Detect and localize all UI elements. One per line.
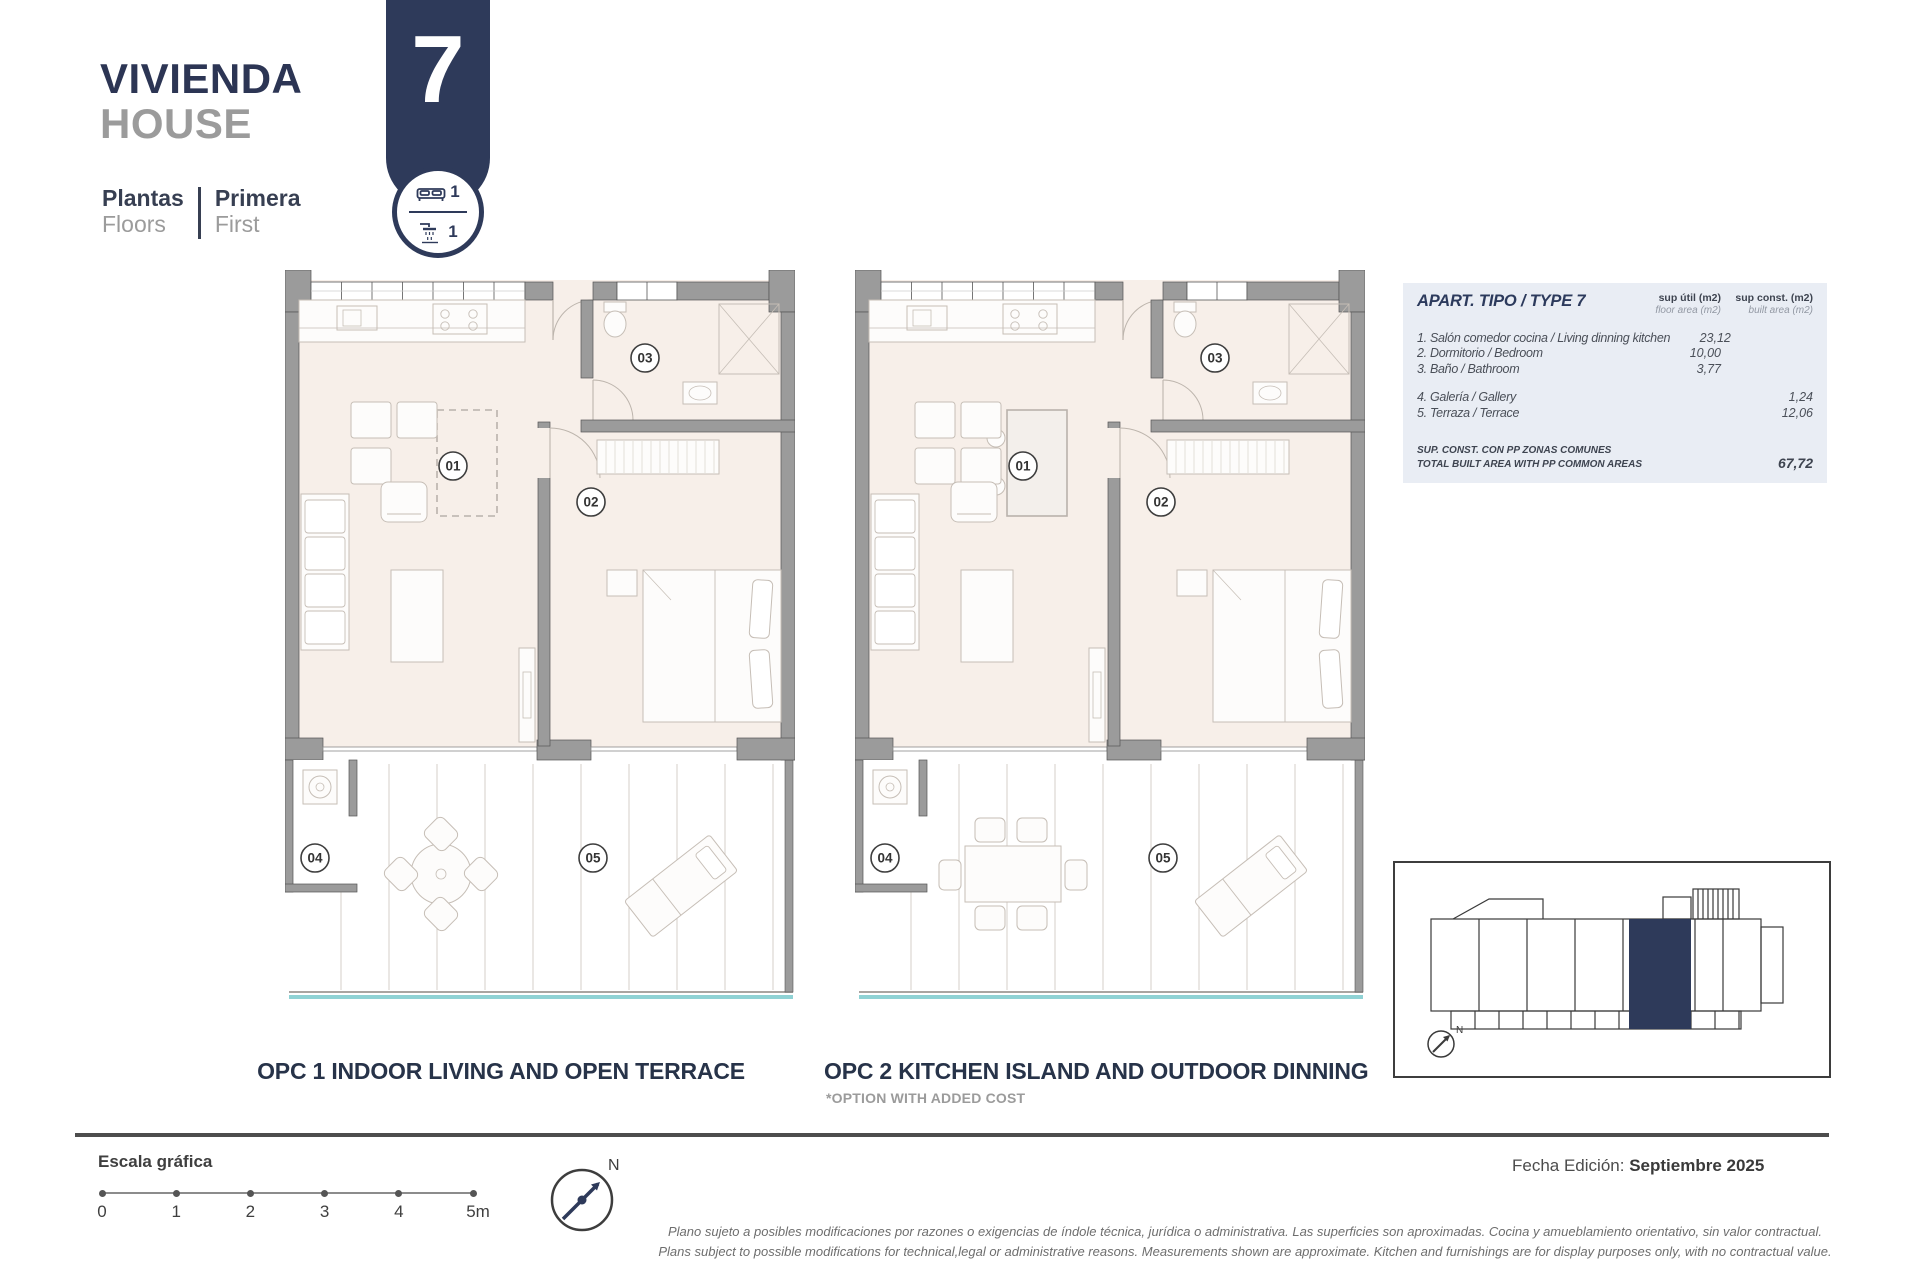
svg-text:04: 04: [307, 851, 323, 866]
area-table-rows: 1. Salón comedor cocina / Living dinning…: [1417, 331, 1813, 422]
keyplan-highlighted-unit: [1629, 919, 1691, 1029]
area-row: 2. Dormitorio / Bedroom10,00: [1417, 346, 1813, 362]
col-built-area-label: sup const. (m2): [1721, 292, 1813, 305]
legal-disclaimer: Plano sujeto a posibles modificaciones p…: [645, 1222, 1845, 1262]
col-built-area-sublabel: built area (m2): [1721, 305, 1813, 317]
col-floor-area-label: sup útil (m2): [1653, 292, 1721, 305]
floor-divider: [198, 187, 201, 239]
area-table-total: SUP. CONST. CON PP ZONAS COMUNES TOTAL B…: [1417, 444, 1813, 471]
terrace-round-table: [382, 815, 500, 933]
scale-tick-dot: [395, 1190, 402, 1197]
bedroom-count: 1: [450, 182, 459, 202]
scale-tick-dot: [321, 1190, 328, 1197]
floorplan-opc2: 0102030405: [855, 270, 1365, 1005]
room-label-03: 03: [1201, 344, 1229, 372]
sun-lounger: [1194, 835, 1307, 938]
room-label-05: 05: [579, 844, 607, 872]
svg-text:02: 02: [583, 495, 598, 510]
svg-text:05: 05: [585, 851, 601, 866]
opc1-caption: OPC 1 INDOOR LIVING AND OPEN TERRACE: [255, 1058, 747, 1085]
floor-value-en: First: [215, 211, 301, 237]
scale-tick-label: 1: [156, 1202, 196, 1222]
bedside-table: [607, 570, 637, 596]
scale-tick-label: 0: [82, 1202, 122, 1222]
scale-tick-dot: [470, 1190, 477, 1197]
scale-tick-label: 5m: [458, 1202, 498, 1222]
svg-text:02: 02: [1153, 495, 1168, 510]
keyplan-north-label: N: [1456, 1025, 1463, 1036]
area-row: 4. Galería / Gallery1,24: [1417, 390, 1813, 406]
svg-text:05: 05: [1155, 851, 1171, 866]
disclaimer-es: Plano sujeto a posibles modificaciones p…: [645, 1222, 1845, 1242]
scale-tick-dot: [247, 1190, 254, 1197]
area-row: 3. Baño / Bathroom3,77: [1417, 362, 1813, 378]
floorplan-opc1: 0102030405: [285, 270, 795, 1005]
total-label-en: TOTAL BUILT AREA WITH PP COMMON AREAS: [1417, 458, 1778, 472]
bedroom-count-row: 1: [416, 173, 459, 211]
page-title-en: HOUSE: [100, 100, 252, 148]
svg-text:03: 03: [637, 351, 653, 366]
double-bed: [643, 570, 781, 722]
scale-tick-dot: [99, 1190, 106, 1197]
svg-text:01: 01: [445, 459, 461, 474]
scale-bar-line: [102, 1192, 473, 1194]
page-title: VIVIENDA: [100, 55, 302, 103]
opc2-caption: OPC 2 KITCHEN ISLAND AND OUTDOOR DINNING: [824, 1058, 1368, 1085]
opc2-added-cost-note: *OPTION WITH ADDED COST: [826, 1090, 1025, 1106]
floorplan-sheet: VIVIENDA HOUSE Plantas Floors Primera Fi…: [0, 0, 1920, 1280]
double-bed: [1213, 570, 1351, 722]
sofa: [871, 494, 919, 650]
floor-indicator: Plantas Floors Primera First: [102, 185, 301, 239]
unit-amenities-badge: 1 1: [392, 166, 484, 258]
wardrobe: [597, 440, 719, 474]
area-row: 1. Salón comedor cocina / Living dinning…: [1417, 331, 1813, 347]
edition-date-value: Septiembre 2025: [1629, 1156, 1764, 1175]
kitchen-counter: [299, 300, 525, 342]
area-table-title: APART. TIPO / TYPE 7: [1417, 292, 1653, 317]
gallery-room: [285, 760, 357, 892]
room-label-04: 04: [871, 844, 899, 872]
armchair: [381, 482, 427, 522]
total-label-es: SUP. CONST. CON PP ZONAS COMUNES: [1417, 444, 1778, 458]
coffee-table: [391, 570, 443, 662]
coffee-table: [961, 570, 1013, 662]
tv-unit: [519, 648, 535, 742]
disclaimer-en: Plans subject to possible modifications …: [645, 1242, 1845, 1262]
shower-icon: [418, 220, 444, 244]
sun-lounger: [624, 835, 737, 938]
armchair: [951, 482, 997, 522]
scale-tick-dot: [173, 1190, 180, 1197]
room-label-02: 02: [577, 488, 605, 516]
room-label-05: 05: [1149, 844, 1177, 872]
north-compass: N: [548, 1150, 634, 1240]
room-label-01: 01: [439, 452, 467, 480]
bathroom-count: 1: [448, 222, 457, 242]
gallery-room: [855, 760, 927, 892]
floors-label-en: Floors: [102, 211, 184, 237]
kitchen-counter: [869, 300, 1095, 342]
bathroom-count-row: 1: [418, 213, 457, 251]
room-label-02: 02: [1147, 488, 1175, 516]
room-label-03: 03: [631, 344, 659, 372]
bedside-table: [1177, 570, 1207, 596]
keyplan: N: [1393, 861, 1831, 1078]
svg-text:04: 04: [877, 851, 893, 866]
total-built-area-value: 67,72: [1778, 455, 1813, 471]
sofa: [301, 494, 349, 650]
scale-tick-label: 2: [230, 1202, 270, 1222]
svg-text:01: 01: [1015, 459, 1031, 474]
bed-icon: [416, 182, 446, 202]
room-label-01: 01: [1009, 452, 1037, 480]
wardrobe: [1167, 440, 1289, 474]
compass-north-label: N: [608, 1157, 620, 1174]
unit-number: 7: [386, 0, 490, 118]
edition-date: Fecha Edición: Septiembre 2025: [1512, 1156, 1764, 1176]
col-floor-area-sublabel: floor area (m2): [1653, 305, 1721, 317]
floor-value-es: Primera: [215, 185, 301, 211]
area-table: APART. TIPO / TYPE 7 sup útil (m2) floor…: [1403, 283, 1827, 483]
scale-tick-label: 4: [379, 1202, 419, 1222]
room-label-04: 04: [301, 844, 329, 872]
svg-text:03: 03: [1207, 351, 1223, 366]
terrace-dining-table: [939, 818, 1087, 930]
scale-bar-label: Escala gráfica: [98, 1152, 212, 1172]
area-row: 5. Terraza / Terrace12,06: [1417, 406, 1813, 422]
tv-unit: [1089, 648, 1105, 742]
edition-date-label: Fecha Edición:: [1512, 1156, 1624, 1175]
floors-label-es: Plantas: [102, 185, 184, 211]
scale-tick-label: 3: [305, 1202, 345, 1222]
footer-divider: [75, 1133, 1829, 1137]
